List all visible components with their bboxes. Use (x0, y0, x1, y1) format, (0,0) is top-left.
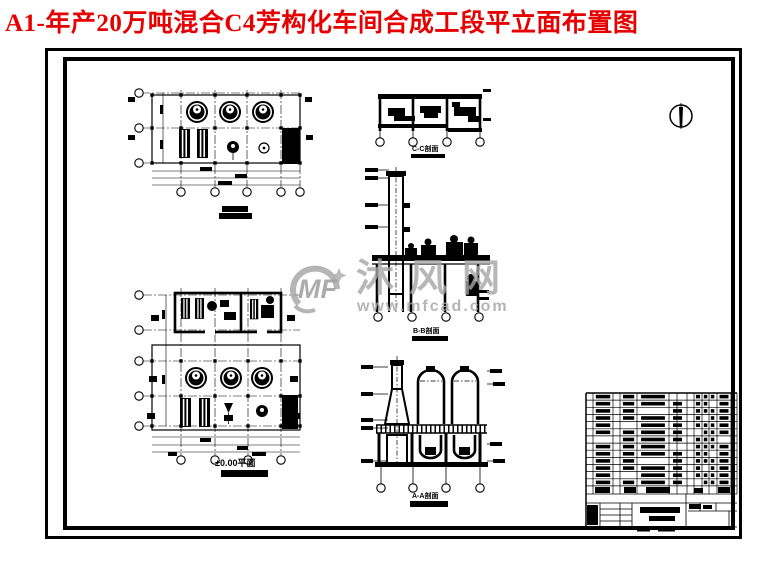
upper-plan-caption-redacted (222, 206, 248, 212)
north-arrow-icon (670, 103, 692, 129)
section-cc-caption: C-C剖面 (412, 146, 438, 153)
section-aa-caption-underline (410, 501, 448, 507)
ground-plan-caption-underline (221, 470, 268, 477)
section-aa-caption: A-A剖面 (412, 493, 438, 500)
section-aa-drawing (361, 356, 505, 484)
ground-plan-drawing (143, 288, 300, 456)
drawing-preview-page: { "sheet": { "title": "A1-年产20万吨混合C4芳构化车… (0, 0, 775, 587)
section-cc-drawing (378, 89, 491, 138)
section-cc-caption-underline (411, 154, 445, 158)
ground-plan-caption: ±0.00平面 (215, 459, 255, 468)
upper-plan-drawing (128, 90, 313, 187)
title-block (586, 393, 737, 532)
section-bb-caption-underline (412, 336, 448, 341)
upper-plan-caption-underline (219, 213, 252, 219)
section-bb-drawing (365, 167, 490, 312)
cad-linework (0, 0, 775, 587)
section-bb-caption: B-B剖面 (413, 328, 439, 335)
